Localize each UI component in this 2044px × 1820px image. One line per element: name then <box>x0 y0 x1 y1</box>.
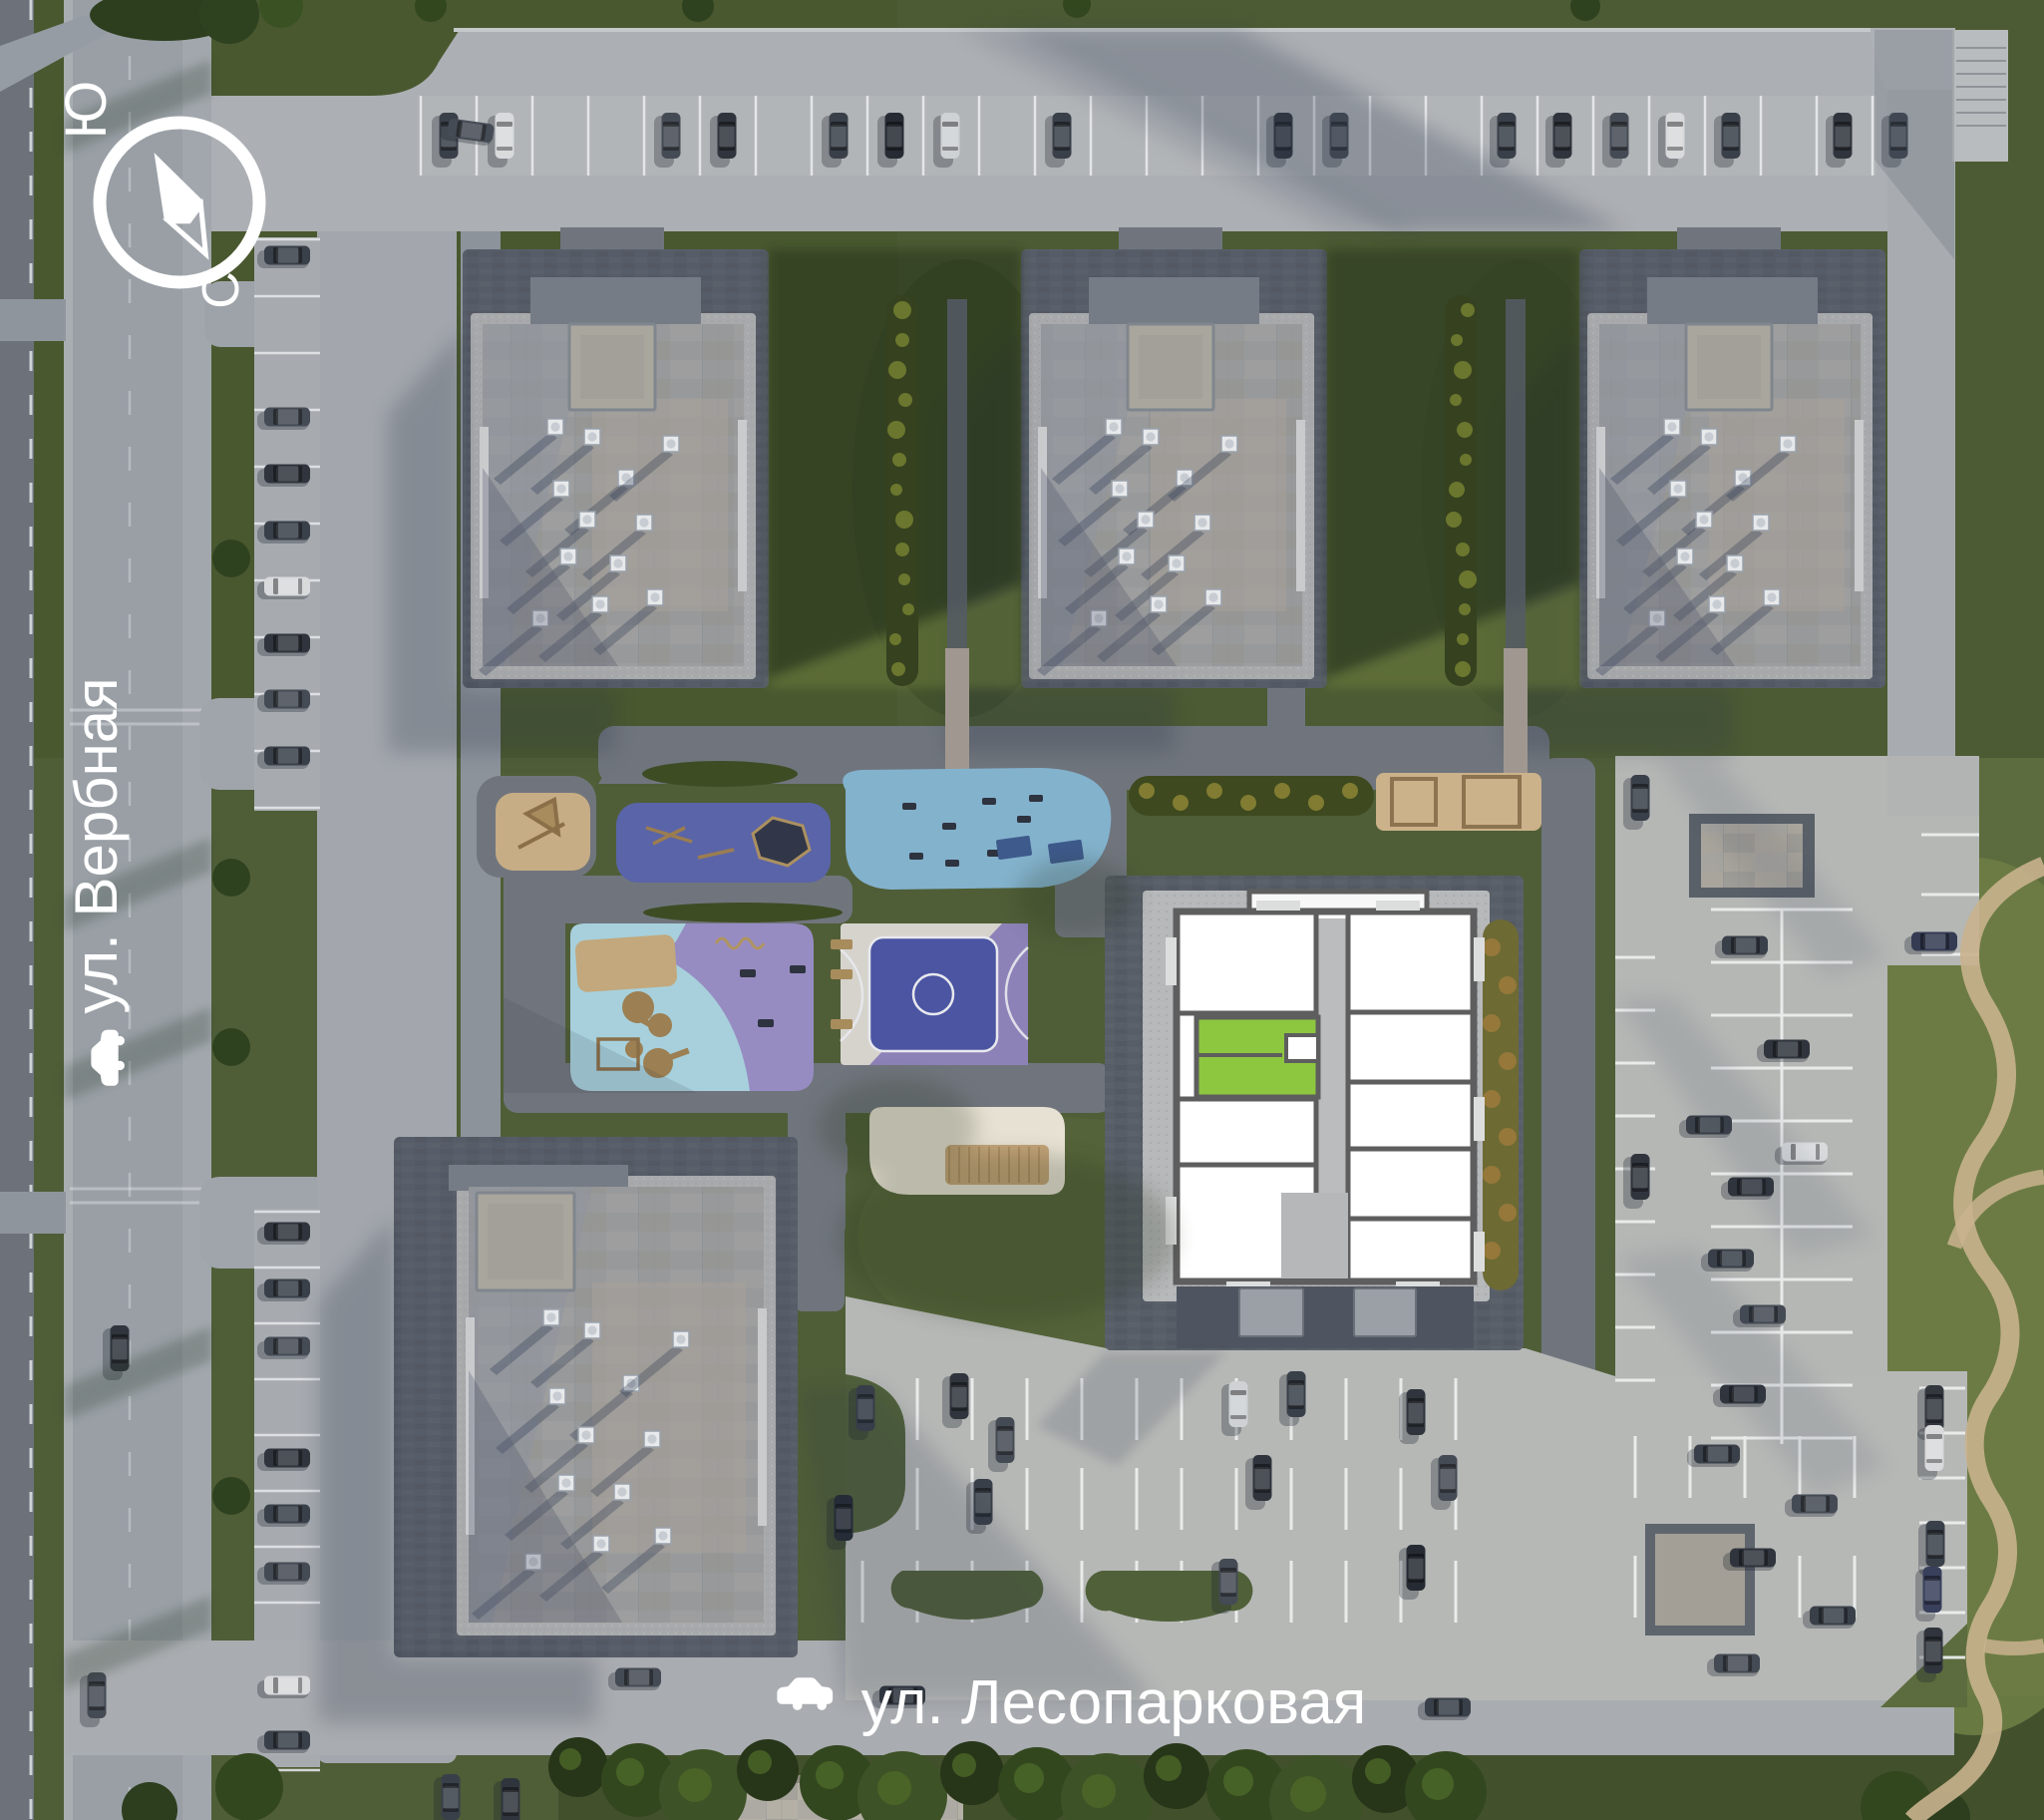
svg-text:Ю: Ю <box>54 81 119 140</box>
svg-text:С: С <box>192 271 250 309</box>
svg-text:ул. Вербная: ул. Вербная <box>63 677 130 1013</box>
svg-text:ул. Лесопарковая: ул. Лесопарковая <box>861 1668 1367 1737</box>
